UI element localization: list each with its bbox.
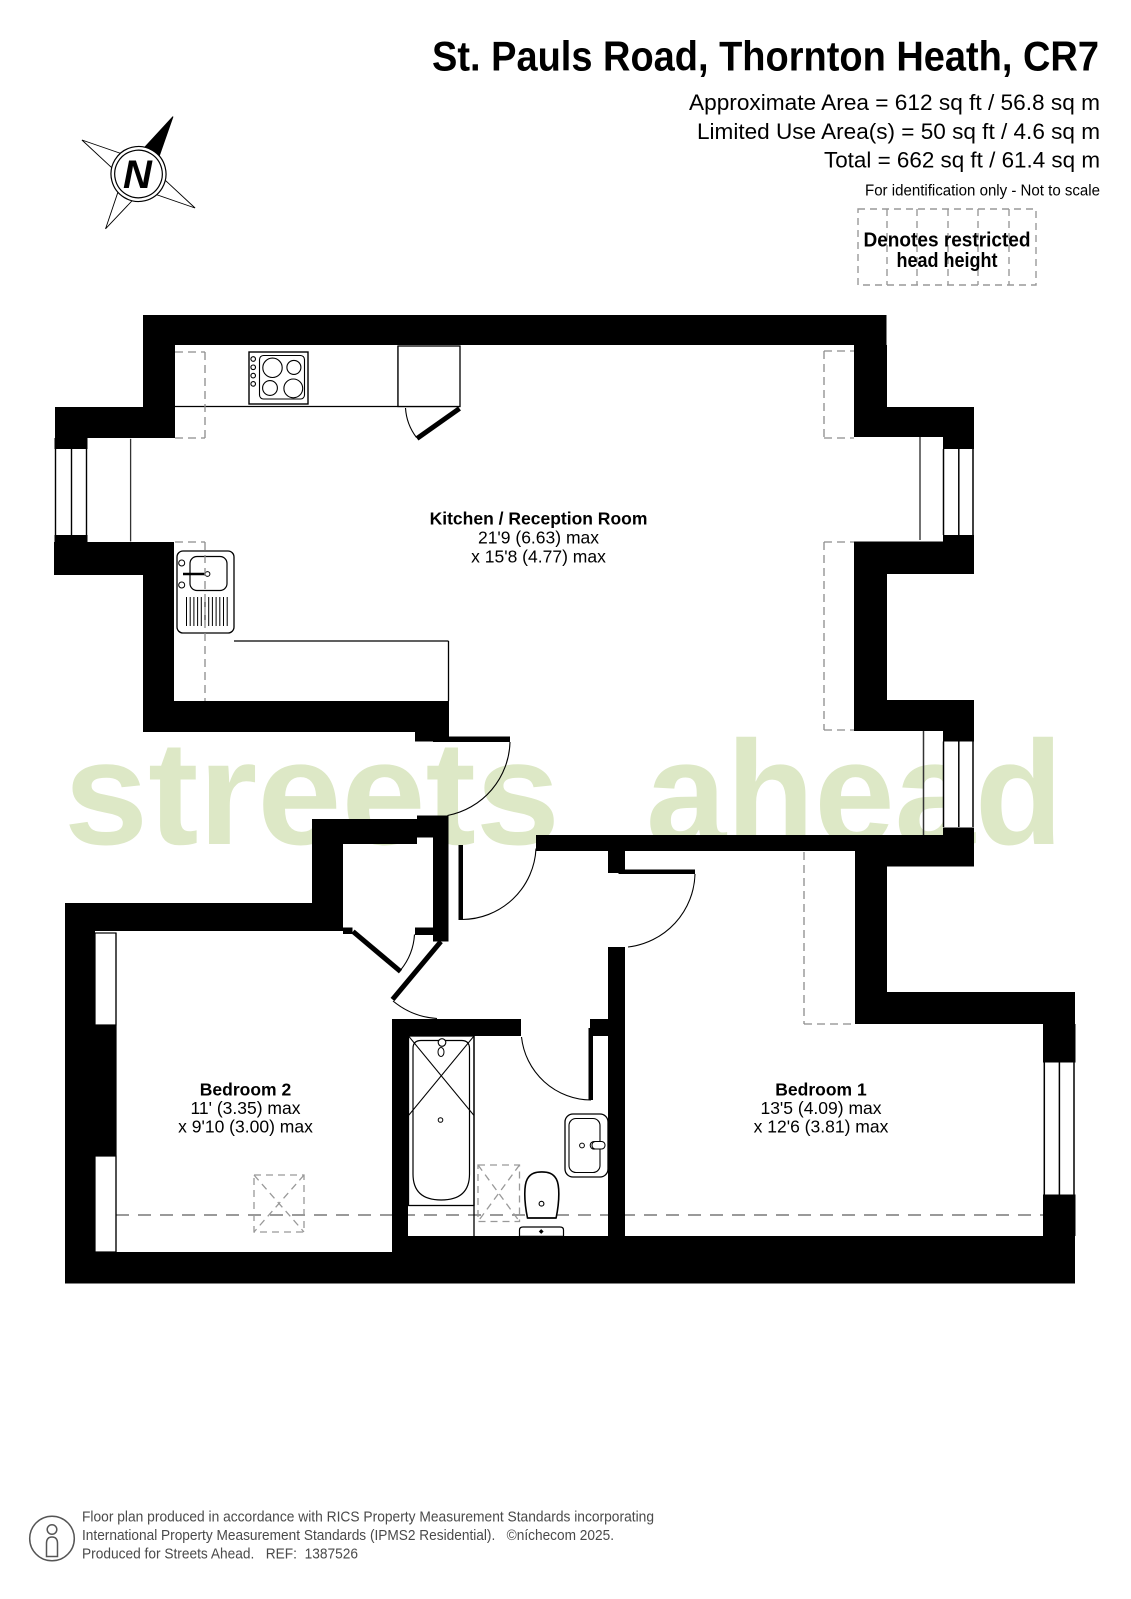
svg-text:N: N (123, 153, 153, 197)
svg-text:International Property Measure: International Property Measurement Stand… (82, 1528, 614, 1544)
svg-text:Kitchen / Reception Room: Kitchen / Reception Room (430, 509, 648, 529)
svg-text:St. Pauls Road, Thornton Heath: St. Pauls Road, Thornton Heath, CR7 (432, 32, 1099, 79)
svg-text:Bedroom 1: Bedroom 1 (775, 1080, 867, 1100)
svg-text:x 12'6 (3.81) max: x 12'6 (3.81) max (754, 1116, 889, 1136)
svg-text:Approximate Area = 612 sq ft /: Approximate Area = 612 sq ft / 56.8 sq m (689, 90, 1100, 115)
svg-text:13'5 (4.09) max: 13'5 (4.09) max (760, 1098, 881, 1118)
svg-text:x 15'8 (4.77) max: x 15'8 (4.77) max (471, 546, 606, 566)
svg-text:Bedroom 2: Bedroom 2 (200, 1080, 292, 1100)
svg-text:For identification only - Not: For identification only - Not to scale (865, 183, 1100, 200)
svg-text:x 9'10 (3.00) max: x 9'10 (3.00) max (178, 1116, 313, 1136)
svg-text:ahead: ahead (646, 711, 1063, 876)
svg-text:Produced for Streets Ahead.: Produced for Streets Ahead. REF: 1387526 (82, 1546, 358, 1562)
svg-text:Total = 662 sq ft / 61.4 sq m: Total = 662 sq ft / 61.4 sq m (824, 148, 1100, 173)
svg-text:Floor plan produced in accorda: Floor plan produced in accordance with R… (82, 1510, 654, 1526)
svg-text:Limited Use Area(s) = 50 sq ft: Limited Use Area(s) = 50 sq ft / 4.6 sq … (697, 119, 1100, 144)
svg-text:11' (3.35) max: 11' (3.35) max (190, 1098, 300, 1118)
svg-text:head height: head height (897, 249, 998, 272)
svg-text:21'9 (6.63) max: 21'9 (6.63) max (478, 528, 599, 548)
